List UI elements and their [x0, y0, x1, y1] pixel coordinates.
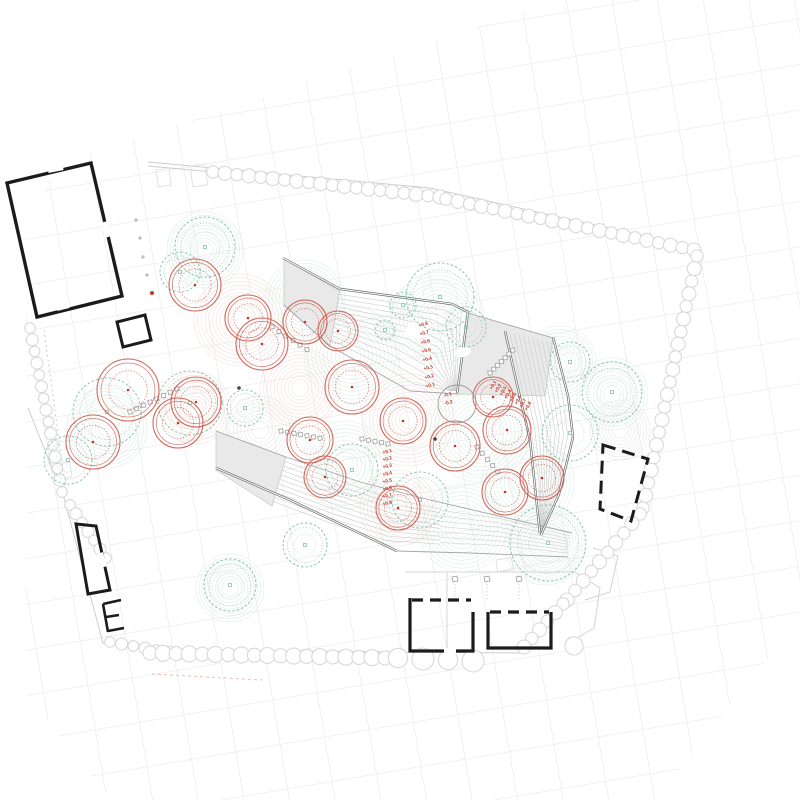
boundary-tree-icon — [663, 238, 677, 252]
boundary-tree-icon — [302, 176, 314, 188]
planter-icon — [134, 406, 139, 411]
boundary-trees — [25, 166, 703, 672]
elevation-label: +0.6 — [420, 338, 431, 346]
planter-icon — [379, 440, 384, 445]
building-outline — [108, 628, 124, 631]
buildings — [7, 163, 648, 651]
boundary-tree-icon — [207, 166, 219, 178]
planter-icon — [452, 576, 458, 582]
boundary-tree-icon — [290, 174, 304, 188]
boundary-tree-icon — [664, 376, 676, 388]
planter-icon — [386, 441, 391, 446]
boundary-tree-icon — [34, 370, 45, 381]
ramp-deck — [284, 259, 340, 346]
elevation-label: +0.5 — [382, 477, 393, 485]
boundary-tree-icon — [675, 325, 687, 337]
boundary-tree-icon — [255, 171, 267, 183]
boundary-tree-icon — [522, 209, 536, 223]
boundary-tree-icon — [462, 650, 484, 672]
existing-tree-icon — [283, 523, 327, 567]
planter-icon — [490, 463, 495, 468]
boundary-tree-icon — [671, 337, 685, 351]
boundary-tree-icon — [691, 250, 703, 262]
boundary-tree-icon — [463, 198, 475, 210]
boundary-tree-icon — [498, 204, 512, 218]
boundary-tree-icon — [474, 199, 488, 213]
boundary-tree-icon — [49, 451, 61, 463]
proposed-tree-icon — [430, 421, 480, 471]
boundary-tree-icon — [677, 312, 691, 326]
dark-marker-dot — [237, 386, 241, 390]
boundary-tree-icon — [676, 241, 688, 253]
boundary-tree-icon — [593, 224, 607, 238]
building-outline — [106, 615, 119, 617]
planter-icon — [305, 347, 310, 352]
planter-icon — [270, 325, 275, 330]
boundary-tree-icon — [40, 404, 52, 416]
planter-icon — [484, 576, 490, 582]
proposed-tree-icon — [169, 259, 221, 311]
boundary-tree-icon — [440, 193, 452, 205]
building-outline — [410, 598, 473, 651]
planter-icon — [128, 410, 133, 415]
boundary-tree-icon — [658, 401, 670, 413]
red-marker-dot — [150, 291, 154, 295]
boundary-tree-icon — [569, 219, 583, 233]
building-outline — [117, 315, 151, 347]
boundary-tree-icon — [374, 184, 386, 196]
planter-icon — [480, 451, 485, 456]
elevation-label: +0.5 — [421, 347, 432, 355]
boundary-tree-icon — [398, 187, 410, 199]
existing-tree-icon — [550, 342, 590, 382]
boundary-tree-icon — [57, 487, 68, 498]
boundary-tree-icon — [422, 190, 434, 202]
planter-icon — [503, 355, 508, 360]
planter-icon — [495, 363, 500, 368]
boundary-tree-icon — [629, 232, 641, 244]
boundary-tree-icon — [266, 172, 280, 186]
planter-icon — [298, 432, 303, 437]
planter-icon — [373, 439, 378, 444]
site-plan-drawing: +0.8+0.7+0.6+0.5+0.4+0.3+0.2+0.1+0.1+0.2… — [0, 0, 800, 800]
planter-icon — [507, 352, 512, 357]
boundary-tree-icon — [45, 427, 57, 439]
planter-icon — [510, 348, 515, 353]
boundary-tree-icon — [644, 463, 658, 477]
planter-icon — [516, 576, 522, 582]
boundary-tree-icon — [682, 287, 696, 301]
boundary-tree-icon — [653, 426, 665, 438]
boundary-tree-icon — [666, 362, 680, 376]
boundary-tree-icon — [52, 463, 63, 474]
dark-marker-dot — [433, 437, 437, 441]
planter-icon — [491, 367, 496, 372]
elevation-label: +0.2 — [382, 455, 393, 463]
boundary-tree-icon — [350, 182, 362, 194]
grid-layer — [0, 0, 800, 800]
boundary-tree-icon — [279, 174, 291, 186]
planter-icon — [485, 457, 490, 462]
boundary-tree-icon — [231, 168, 243, 180]
planter-icon — [305, 433, 310, 438]
boundary-tree-icon — [687, 262, 701, 276]
boundary-tree-icon — [385, 185, 399, 199]
boundary-tree-icon — [511, 207, 523, 219]
boundary-tree-icon — [685, 275, 697, 287]
planter-icon — [279, 429, 284, 434]
boundary-tree-icon — [680, 300, 692, 312]
boundary-tree-icon — [545, 214, 559, 228]
site-plan-canvas: +0.8+0.7+0.6+0.5+0.4+0.3+0.2+0.1+0.1+0.2… — [0, 0, 800, 800]
boundary-tree-icon — [487, 203, 499, 215]
boundary-tree-icon — [26, 334, 38, 346]
boundary-tree-icon — [660, 388, 674, 402]
boundary-tree-icon — [105, 637, 116, 648]
survey-cross-icon — [138, 236, 142, 240]
boundary-tree-icon — [640, 233, 654, 247]
existing-structure-trace — [190, 164, 208, 187]
boundary-tree-icon — [648, 451, 660, 463]
building-outline — [103, 600, 121, 604]
boundary-tree-icon — [558, 217, 570, 229]
boundary-tree-icon — [616, 228, 630, 242]
boundary-tree-icon — [314, 177, 328, 191]
boundary-tree-icon — [534, 212, 546, 224]
planter-icon — [311, 435, 316, 440]
boundary-tree-icon — [565, 637, 583, 655]
boundary-tree-icon — [38, 393, 49, 404]
planter-icon — [318, 436, 323, 441]
boundary-tree-icon — [361, 182, 375, 196]
boundary-tree-icon — [43, 416, 54, 427]
ramp-deck — [457, 313, 553, 396]
boundary-tree-icon — [388, 648, 407, 667]
elevation-label: +0.4 — [382, 470, 393, 478]
boundary-tree-icon — [242, 169, 256, 183]
existing-tree-icon — [406, 263, 474, 331]
boundary-tree-icon — [35, 381, 47, 393]
survey-cross-icon — [141, 255, 145, 259]
boundary-tree-icon — [652, 237, 664, 249]
boundary-tree-icon — [605, 227, 617, 239]
proposed-tree-icon — [171, 377, 221, 427]
elevation-label: +0.7 — [382, 492, 393, 500]
boundary-tree-icon — [650, 438, 664, 452]
planter-icon — [141, 403, 146, 408]
survey-cross-icon — [145, 273, 149, 277]
elevation-label: +0.4 — [422, 355, 433, 363]
boundary-tree-icon — [451, 194, 465, 208]
boundary-tree-icon — [409, 187, 423, 201]
planter-icon — [360, 437, 365, 442]
planter-icon — [488, 371, 493, 376]
proposed-tree-icon — [304, 456, 346, 498]
boundary-tree-icon — [582, 222, 594, 234]
boundary-tree-icon — [337, 179, 351, 193]
boundary-tree-icon — [25, 323, 36, 334]
boundary-tree-icon — [326, 179, 338, 191]
elevation-label: +0.1 — [425, 381, 436, 389]
planter-icon — [292, 431, 297, 436]
boundary-tree-icon — [639, 488, 653, 502]
boundary-tree-icon — [128, 641, 139, 652]
planter-icon — [366, 438, 371, 443]
boundary-tree-icon — [669, 351, 681, 363]
planter-icon — [499, 359, 504, 364]
boundary-tree-icon — [29, 346, 40, 357]
boundary-tree-icon — [655, 413, 669, 427]
boundary-tree-icon — [218, 166, 232, 180]
boundary-tree-icon — [116, 638, 128, 650]
elevation-label: +0.3 — [382, 463, 393, 471]
boundary-tree-icon — [31, 357, 43, 369]
